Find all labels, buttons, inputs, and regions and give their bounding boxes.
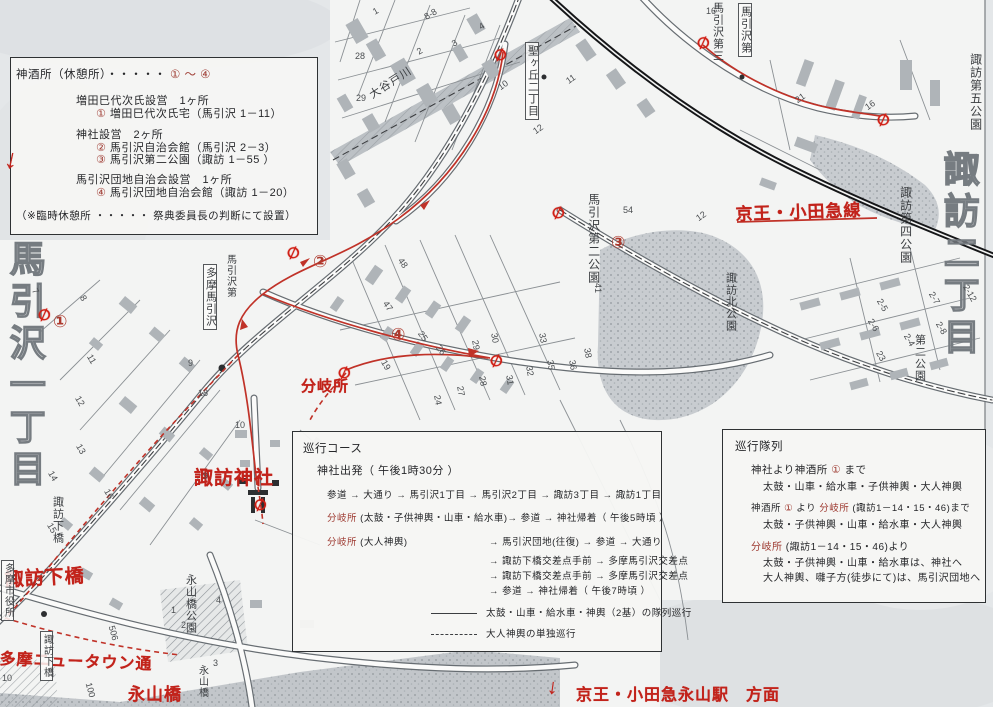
box-text: 巡行コース [303,443,362,455]
box-row: 大人神輿の単独巡行 [431,626,576,640]
rest-stations-legend: 神酒所（休憩所）・・・・・ ① ～ ④増田巳代次氏設営 1ヶ所① 増田巳代次氏宅… [10,57,318,235]
box-row: 神社出発（ 午後1時30分 ） [317,462,459,478]
box-row: 大人神輿、囃子方(徒歩にて)は、馬引沢団地へ [763,569,981,584]
box-row: ① 増田巳代次氏宅（馬引沢 1－11） [96,105,282,121]
box-text: 神社出発（ 午後1時30分 ） [317,465,459,477]
box-text: ① [831,464,841,476]
box-text: 太鼓・子供神輿・山車・給水車・大人神輿 [763,520,963,531]
box-text: 神酒所 [751,503,784,514]
box-row: 分岐所 (諏訪1－14・15・46)より [751,538,909,553]
box-text: (諏訪1－14・15・46)より [783,542,910,553]
dashed-route-legend-line [431,634,477,635]
box-text: 太鼓・子供神輿・山車・給水車は、神社へ [763,558,963,569]
box-text: 分岐所 [819,503,849,514]
box-row: （※臨時休憩所 ・・・・・ 祭典委員長の判断にて設置） [16,208,296,223]
building-block [250,600,262,608]
box-text: (大人神輿) [357,537,407,548]
procession-formation-legend: 巡行隊列神社より神酒所 ① まで太鼓・山車・給水車・子供神輿・大人神輿神酒所 ①… [722,429,986,603]
box-text: 馬引沢第二公園（諏訪 1－55 ） [106,154,275,166]
box-text: まで [841,464,866,476]
box-row: 太鼓・山車・給水車・神輿（2基）の隊列巡行 [431,605,692,619]
box-row: → 馬引沢団地(往復) → 参道 → 大通り [489,534,662,548]
box-row: → 参道 → 神社帰着（ 午後7時頃 ） [489,583,650,597]
box-text: → 諏訪下橋交差点手前 → 多摩馬引沢交差点 [489,556,688,567]
box-text: 神酒所（休憩所）・・・・・ [16,69,170,81]
building-block [240,460,250,467]
box-text: より [793,503,819,514]
box-text: 分岐所 [327,513,357,524]
box-text: 増田巳代次氏宅（馬引沢 1－11） [106,108,282,120]
box-text: 分岐所 [327,537,357,548]
box-text: 参道 → 大通り → 馬引沢1丁目 → 馬引沢2丁目 → 諏訪3丁目 → 諏訪1… [327,490,662,501]
box-row: 神酒所 ① より 分岐所 (諏訪1－14・15・46)まで [751,500,970,514]
box-row: 巡行隊列 [735,438,783,454]
box-text: → 参道 → 神社帰着（ 午後7時頃 ） [489,586,650,597]
box-text: ③ [96,154,106,166]
box-row: 神酒所（休憩所）・・・・・ ① ～ ④ [16,66,211,82]
box-text: 馬引沢団地自治会館（諏訪 1－20） [106,187,294,199]
box-row: → 諏訪下橋交差点手前 → 多摩馬引沢交差点 [489,568,688,582]
box-text: (諏訪1－14・15・46)まで [849,503,970,514]
box-text: ④ [96,187,106,199]
box-text: 分岐所 [751,542,783,553]
building-block [270,440,280,447]
box-row: 巡行コース [303,440,362,456]
box-row: 太鼓・山車・給水車・子供神輿・大人神輿 [763,478,963,493]
box-text: 巡行隊列 [735,441,783,453]
box-row: 太鼓・子供神輿・山車・給水車・大人神輿 [763,516,963,531]
box-text: 大人神輿、囃子方(徒歩にて)は、馬引沢団地へ [763,573,981,584]
box-text: 大人神輿の単独巡行 [486,629,576,640]
building-block [930,80,940,106]
box-row: 分岐所 (太鼓・子供神輿・山車・給水車)→ 参道 → 神社帰着（ 午後5時頃 ） [327,510,669,524]
box-text: ① ～ ④ [170,69,211,81]
box-text: 太鼓・山車・給水車・神輿（2基）の隊列巡行 [486,608,692,619]
box-text: (太鼓・子供神輿・山車・給水車)→ 参道 → 神社帰着（ 午後5時頃 ） [357,513,669,524]
box-text: ① [784,503,793,514]
box-row: ③ 馬引沢第二公園（諏訪 1－55 ） [96,151,275,167]
box-text: 太鼓・山車・給水車・子供神輿・大人神輿 [763,482,963,493]
box-row: 太鼓・子供神輿・山車・給水車は、神社へ [763,554,963,569]
box-text: 神社より神酒所 [751,464,831,476]
box-text: → 馬引沢団地(往復) → 参道 → 大通り [489,537,662,548]
solid-route-legend-line [431,613,477,614]
box-text: ① [96,108,106,120]
box-text: （※臨時休憩所 ・・・・・ 祭典委員長の判断にて設置） [16,210,296,222]
building-block [235,430,247,438]
festival-map-scan: 京王・小田急線分岐所諏訪神社諏訪下橋多摩ニュータウン通永山橋↓京王・小田急永山駅… [0,0,993,707]
box-row: 参道 → 大通り → 馬引沢1丁目 → 馬引沢2丁目 → 諏訪3丁目 → 諏訪1… [327,487,662,501]
box-text: → 諏訪下橋交差点手前 → 多摩馬引沢交差点 [489,571,688,582]
procession-course-legend: 巡行コース神社出発（ 午後1時30分 ）参道 → 大通り → 馬引沢1丁目 → … [292,431,662,652]
building-block [900,60,912,90]
box-row: → 諏訪下橋交差点手前 → 多摩馬引沢交差点 [489,553,688,567]
box-row: 神社より神酒所 ① まで [751,462,867,477]
box-row: 分岐所 (大人神輿) [327,534,407,548]
box-row: ④ 馬引沢団地自治会館（諏訪 1－20） [96,184,294,200]
